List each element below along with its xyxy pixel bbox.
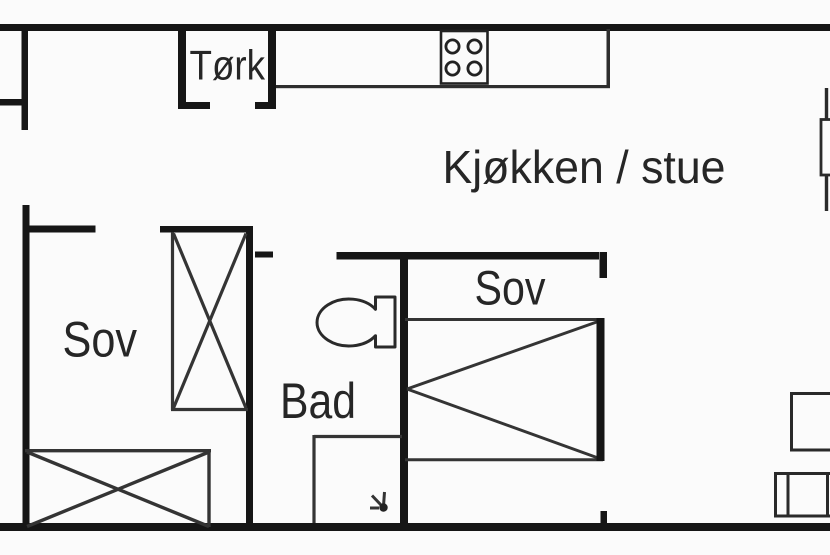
- svg-text:Bad: Bad: [280, 373, 356, 429]
- svg-text:Tørk: Tørk: [190, 42, 266, 89]
- svg-text:Sov: Sov: [475, 263, 546, 316]
- svg-text:Kjøkken / stue: Kjøkken / stue: [443, 141, 726, 193]
- svg-text:Sov: Sov: [63, 312, 138, 368]
